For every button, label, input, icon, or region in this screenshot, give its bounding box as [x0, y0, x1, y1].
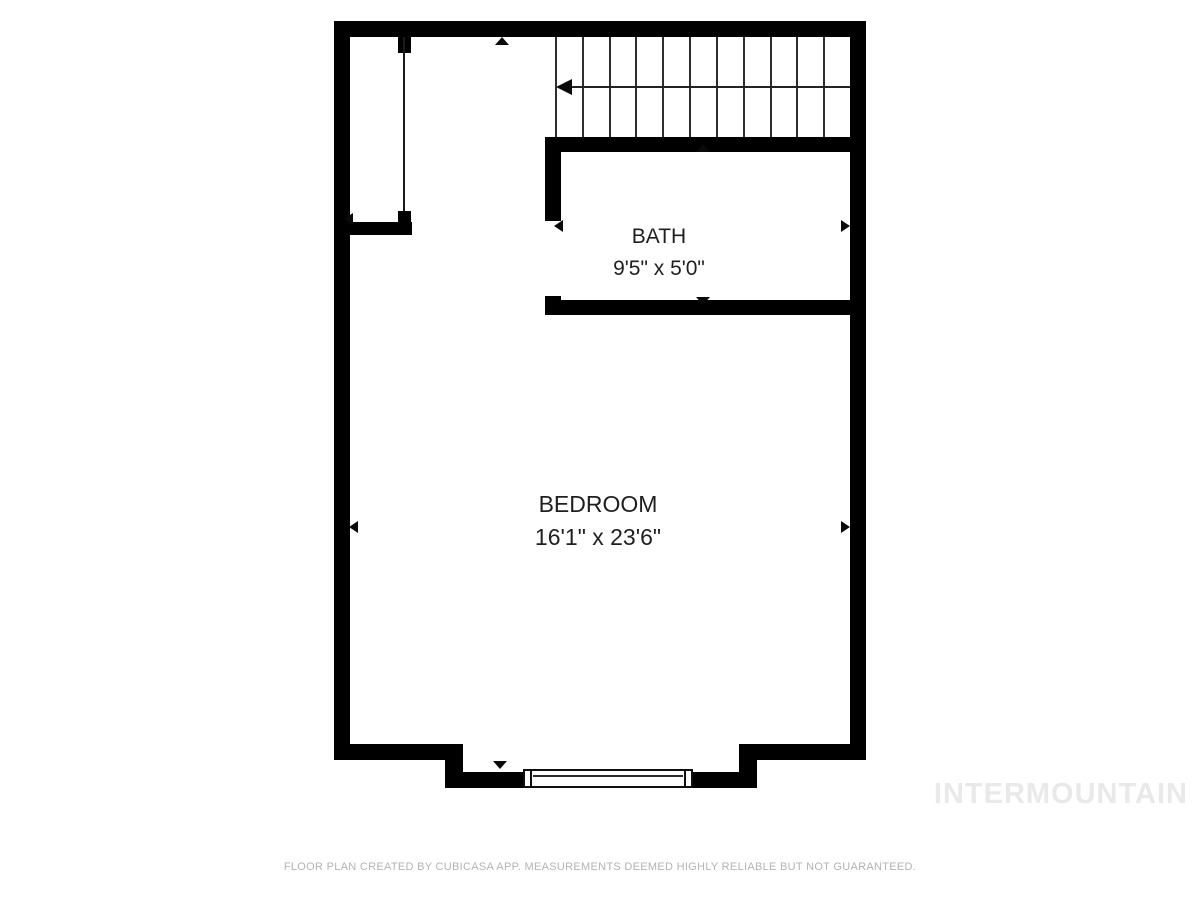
triangle-marker-right-wall-bedroom-icon	[841, 521, 850, 533]
floor-plan: BATH 9'5" x 5'0" BEDROOM 16'1" x 23'6" I…	[0, 0, 1200, 900]
wall-right	[850, 21, 866, 760]
wall-left	[334, 21, 350, 760]
triangle-marker-bath-bottom-icon	[696, 297, 710, 305]
closet-divider-line	[403, 37, 405, 217]
stair-direction-line	[569, 86, 850, 88]
triangle-marker-closet-wall-icon	[344, 213, 353, 225]
bath-wall-left-upper	[545, 137, 561, 221]
wall-bottom-left	[334, 744, 463, 760]
room-label-bath: BATH 9'5" x 5'0"	[545, 221, 773, 285]
bath-name: BATH	[545, 221, 773, 253]
triangle-marker-bath-top-icon	[696, 144, 710, 152]
triangle-marker-top-wall-icon	[495, 37, 509, 45]
bath-dimensions: 9'5" x 5'0"	[545, 253, 773, 285]
bedroom-dimensions: 16'1" x 23'6"	[468, 521, 728, 554]
triangle-marker-right-wall-bath-icon	[841, 220, 850, 232]
footer-disclaimer: FLOOR PLAN CREATED BY CUBICASA APP. MEAS…	[0, 861, 1200, 873]
wall-top	[334, 21, 866, 37]
staircase	[555, 37, 850, 137]
room-label-bedroom: BEDROOM 16'1" x 23'6"	[468, 488, 728, 554]
stair-direction-arrow-icon	[556, 79, 572, 95]
window-rail	[533, 775, 683, 777]
wall-bottom-right	[739, 744, 866, 760]
bedroom-name: BEDROOM	[468, 488, 728, 521]
window-post-left	[530, 771, 532, 786]
window	[523, 769, 693, 788]
window-post-right	[684, 771, 686, 786]
triangle-marker-left-wall-bedroom-icon	[349, 521, 358, 533]
watermark: INTERMOUNTAIN	[934, 778, 1188, 811]
triangle-marker-window-icon	[493, 761, 507, 769]
closet-bottom-wall	[350, 222, 412, 235]
wall-bottom-lower-left	[445, 772, 525, 788]
